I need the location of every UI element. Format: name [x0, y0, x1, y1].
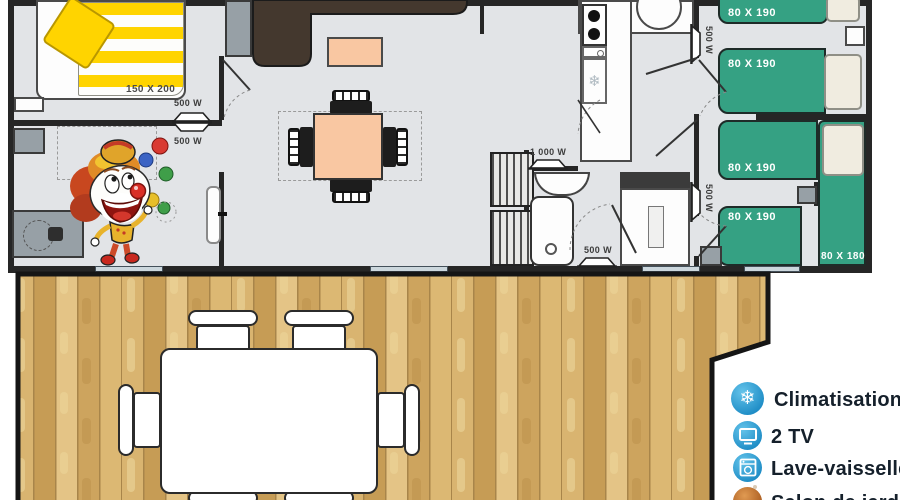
floorplan-page: 150 X 200 500 W 500 W ❄ 1 000 W 500 W 50 [0, 0, 900, 500]
clown-mascot [62, 134, 188, 266]
door-bathroom [570, 204, 636, 253]
legend-label-tv: 2 TV [771, 427, 814, 447]
deck-chair-north2-back [284, 310, 354, 326]
door-bedroom1 [699, 60, 726, 116]
heater-living [172, 113, 212, 131]
deck-chair-east-back [404, 384, 420, 456]
tv-icon [733, 421, 762, 450]
legend-label-salon-jardin: Salon de jardin [771, 493, 900, 500]
snowflake-glyph: ❄ [740, 389, 756, 408]
heater-shower [577, 258, 617, 267]
legend-label-lave-vaisselle: Lave-vaisselle [771, 459, 900, 479]
deck-chair-north1-back [188, 310, 258, 326]
deck-table [160, 348, 378, 494]
snowflake-icon: ❄ [731, 382, 764, 415]
tv-glyph [738, 427, 758, 445]
dishwasher-glyph [739, 458, 757, 477]
dishwasher-icon [733, 453, 762, 482]
door-bedroom2 [699, 214, 726, 256]
door-kitchen-hall [578, 58, 697, 156]
deck-chair-west-seat [133, 392, 161, 448]
garden-icon-sparkle [753, 485, 757, 489]
heater-hall-lower [691, 182, 700, 222]
deck-chair-east-seat [377, 392, 405, 448]
deck-chair-west-back [118, 384, 134, 456]
heater-bathroom [528, 160, 568, 169]
door-master [223, 60, 250, 118]
legend-label-climatisation: Climatisation [774, 390, 900, 410]
sofa-l-shape [253, 0, 467, 66]
